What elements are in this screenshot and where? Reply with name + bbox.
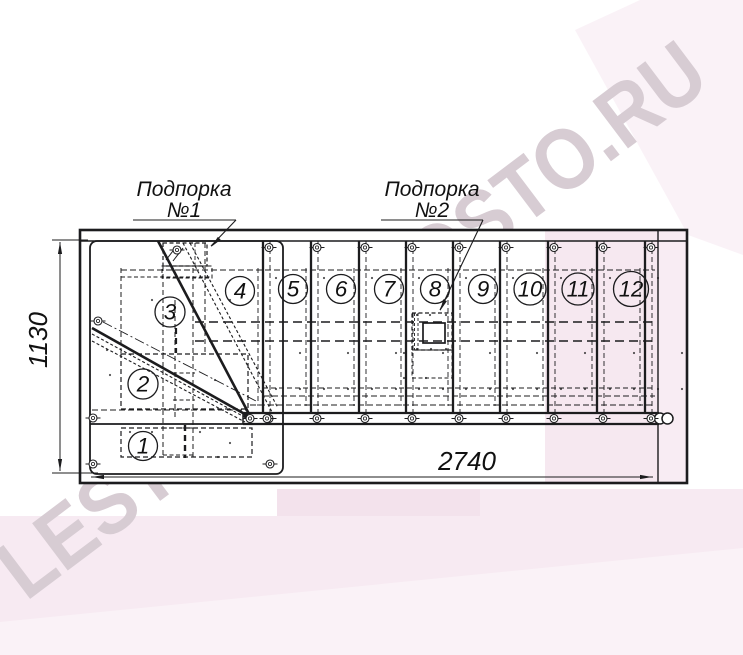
mark-dot — [151, 299, 153, 301]
mark-dot — [584, 352, 586, 354]
mark-dot — [442, 388, 444, 390]
step-number-5: 5 — [287, 277, 300, 302]
bottom-pink-block — [277, 489, 480, 516]
mark-dot — [395, 388, 397, 390]
mark-dot — [489, 388, 491, 390]
mark-dot — [418, 277, 420, 279]
step-number-9: 9 — [477, 277, 490, 302]
mark-dot — [151, 431, 153, 433]
mark-dot — [609, 277, 611, 279]
step-circle-11: 11 — [562, 273, 594, 305]
mark-dot — [442, 352, 444, 354]
mark-dot — [323, 388, 325, 390]
dimension-length-value: 2740 — [437, 446, 496, 476]
step-number-3: 3 — [164, 300, 177, 325]
step-number-8: 8 — [429, 277, 442, 302]
mark-dot — [323, 277, 325, 279]
mark-dot — [657, 277, 659, 279]
support-2-label: Подпорка — [384, 178, 479, 201]
mark-dot — [371, 277, 373, 279]
mark-dot — [681, 352, 683, 354]
support-2-number: №2 — [415, 199, 450, 222]
mark-dot — [199, 431, 201, 433]
mark-dot — [403, 352, 405, 354]
mark-dot — [633, 388, 635, 390]
mark-dot — [275, 388, 277, 390]
mark-dot — [560, 277, 562, 279]
step-number-1: 1 — [137, 434, 150, 459]
step-number-10: 10 — [518, 277, 543, 302]
mark-dot — [465, 388, 467, 390]
step-number-4: 4 — [234, 279, 247, 304]
step-number-12: 12 — [619, 277, 643, 302]
dimension-height-value: 1130 — [23, 312, 53, 368]
step-number-2: 2 — [136, 372, 150, 397]
support-1-number: №1 — [167, 199, 201, 222]
mark-dot — [395, 352, 397, 354]
mark-dot — [129, 431, 131, 433]
mark-dot — [347, 352, 349, 354]
mark-dot — [371, 388, 373, 390]
mark-dot — [299, 388, 301, 390]
mark-dot — [275, 277, 277, 279]
support-1-label: Подпорка — [136, 178, 231, 201]
mark-dot — [536, 352, 538, 354]
mark-dot — [465, 277, 467, 279]
mark-dot — [299, 352, 301, 354]
mark-dot — [429, 314, 431, 316]
mark-dot — [445, 348, 447, 350]
mark-dot — [347, 388, 349, 390]
step-number-7: 7 — [383, 277, 397, 302]
mark-dot — [584, 388, 586, 390]
mark-dot — [536, 388, 538, 390]
mark-dot — [425, 377, 427, 379]
stair-plan-drawing: LESTNICY-PROSTO.RU — [0, 0, 743, 655]
mark-dot — [106, 349, 108, 351]
mark-dot — [416, 348, 418, 350]
mark-dot — [403, 377, 405, 379]
mark-dot — [217, 456, 219, 458]
mark-dot — [214, 379, 216, 381]
mark-dot — [229, 442, 231, 444]
mark-dot — [560, 388, 562, 390]
mark-dot — [609, 388, 611, 390]
mark-dot — [445, 314, 447, 316]
rail-end-cap — [662, 413, 673, 424]
mark-dot — [489, 352, 491, 354]
mark-dot — [633, 352, 635, 354]
inside-pink-margin — [658, 230, 687, 483]
mark-dot — [109, 374, 111, 376]
mark-dot — [418, 388, 420, 390]
mark-dot — [430, 348, 432, 350]
inside-pink-right — [545, 230, 658, 483]
mark-dot — [512, 277, 514, 279]
step-circle-10: 10 — [514, 273, 546, 305]
mark-dot — [416, 314, 418, 316]
mark-dot — [512, 388, 514, 390]
step-number-6: 6 — [335, 277, 348, 302]
screenshot-root: LESTNICY-PROSTO.RU — [0, 0, 743, 655]
mark-dot — [657, 388, 659, 390]
step-number-11: 11 — [567, 277, 590, 302]
mark-dot — [681, 388, 683, 390]
